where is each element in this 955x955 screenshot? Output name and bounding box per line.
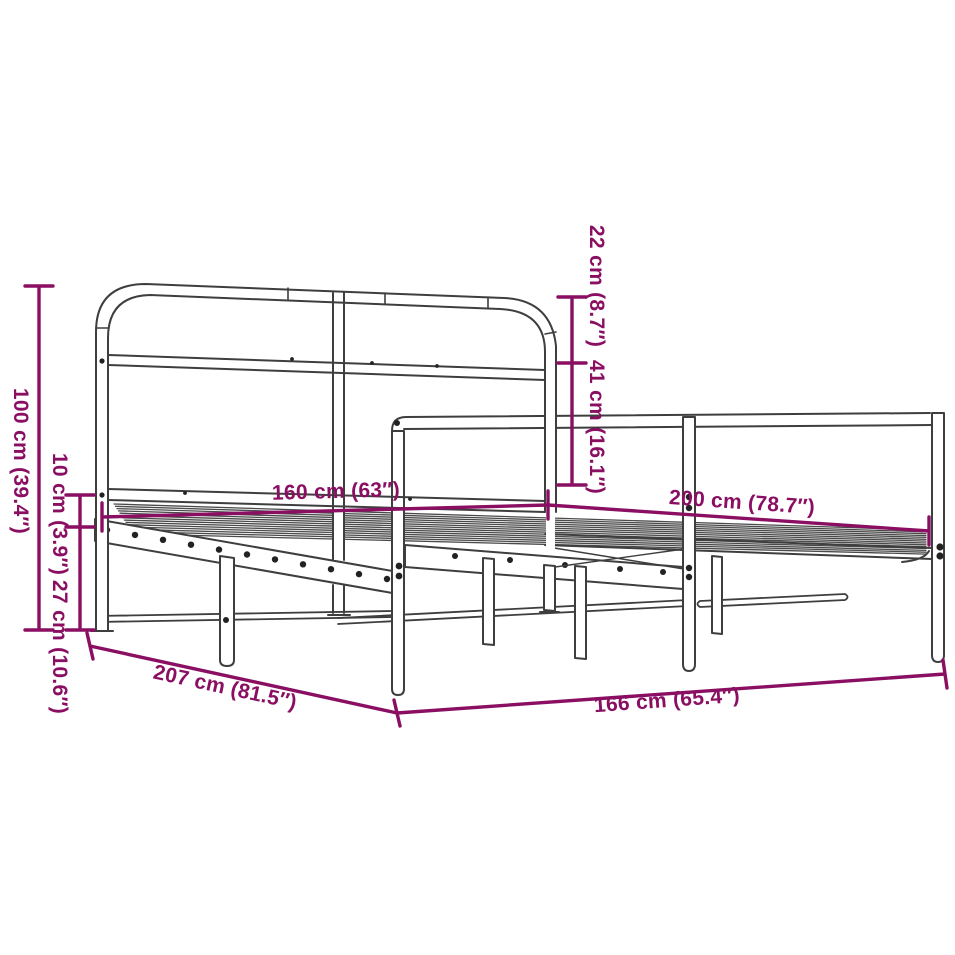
bed-frame-diagram-svg (0, 0, 955, 955)
legs (220, 413, 944, 695)
dim-label-headboard-lower-section: 41 cm (16.1″) (584, 360, 608, 494)
dim-label-base-profile-height: 10 cm (3.9″) (47, 453, 71, 575)
far-mid-leg (712, 556, 722, 634)
dim-label-bed-width: 160 cm (63″) (272, 478, 401, 506)
dimension-line-headboard-sections (558, 297, 586, 485)
footboard-top-rail (392, 413, 932, 431)
center-strut (544, 565, 555, 611)
center-leg-b (575, 566, 586, 659)
footboard-mid-post (683, 417, 695, 671)
center-leg-a (483, 558, 494, 645)
footboard-right-post (932, 413, 944, 662)
diagram-canvas: 100 cm (39.4″) 10 cm (3.9″) 27 cm (10.6″… (0, 0, 955, 955)
dim-label-headboard-upper-section: 22 cm (8.7″) (584, 225, 608, 347)
bed-frame-drawing (91, 284, 944, 695)
dim-label-ground-clearance: 27 cm (10.6″) (47, 580, 71, 714)
near-mid-leg (220, 556, 234, 666)
dim-label-total-height: 100 cm (39.4″) (8, 388, 32, 534)
